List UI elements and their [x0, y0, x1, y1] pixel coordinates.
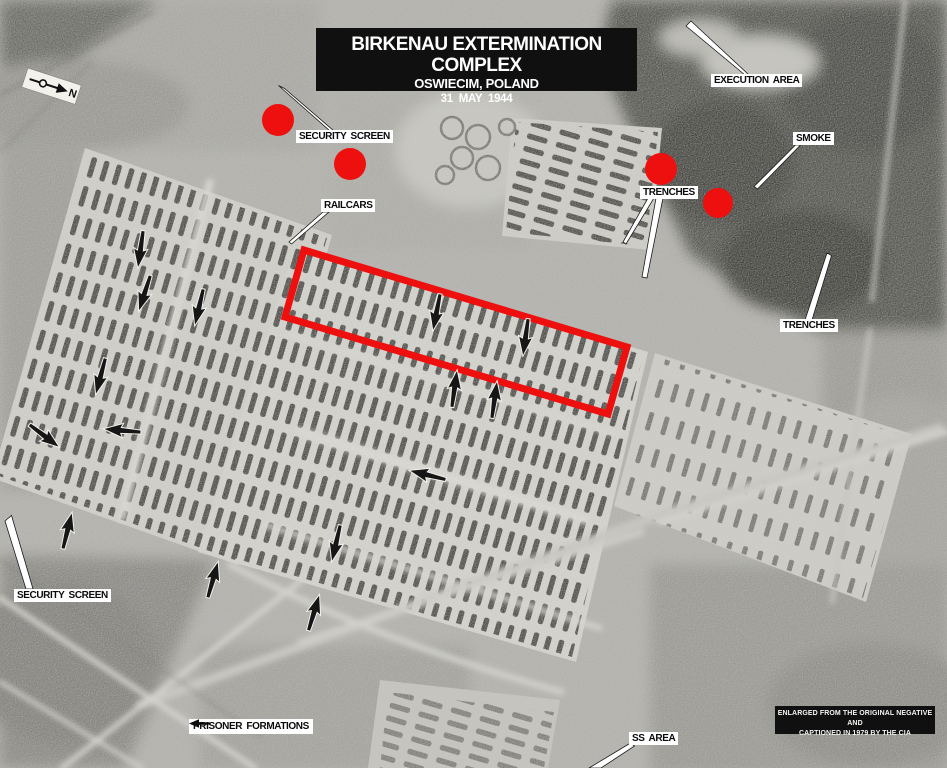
- arrow-marker: [516, 318, 536, 358]
- label-text: SECURITY SCREEN: [17, 590, 108, 601]
- title-box: BIRKENAU EXTERMINATION COMPLEX OSWIECIM,…: [316, 28, 637, 91]
- leader-railcars: [289, 212, 329, 244]
- label-security-screen-top: SECURITY SCREEN: [296, 130, 393, 143]
- label-railcars: RAILCARS: [321, 199, 375, 212]
- arrow-marker: [485, 380, 505, 420]
- arrow-marker: [131, 230, 151, 270]
- compass-north-indicator: N: [22, 68, 81, 104]
- label-text: SMOKE: [796, 133, 831, 144]
- birkenau-annotated-aerial-photo: N BIRKENAU EXTERMINATION COMPLEX OSWIECI…: [0, 0, 947, 768]
- label-trenches-lower: TRENCHES: [780, 319, 838, 332]
- annotation-overlay: N: [0, 0, 947, 768]
- caption-line1: ENLARGED FROM THE ORIGINAL NEGATIVE AND: [775, 709, 935, 729]
- red-dot-marker: [703, 188, 733, 218]
- arrow-marker: [201, 559, 225, 599]
- label-text: EXECUTION AREA: [714, 75, 799, 86]
- arrow-marker: [25, 419, 64, 453]
- title-line1: BIRKENAU EXTERMINATION COMPLEX: [316, 28, 637, 76]
- label-text: SECURITY SCREEN: [299, 131, 390, 142]
- leader-trenches-lower: [805, 253, 832, 320]
- arrow-marker: [102, 422, 141, 440]
- arrow-marker: [325, 523, 348, 563]
- red-dot-marker: [334, 148, 366, 180]
- leader-smoke: [754, 145, 801, 189]
- label-text: TRENCHES: [643, 187, 695, 198]
- arrow-marker: [407, 463, 447, 486]
- arrow-marker: [426, 292, 447, 332]
- arrow-marker: [132, 273, 157, 314]
- red-dot-marker: [262, 104, 294, 136]
- title-line2: OSWIECIM, POLAND: [316, 76, 637, 92]
- arrow-marker: [89, 356, 113, 396]
- red-dot-marker: [645, 153, 677, 185]
- label-prisoner-formations: PRISONER FORMATIONS: [189, 719, 313, 734]
- label-text: SS AREA: [632, 733, 675, 744]
- arrow-marker: [188, 287, 211, 327]
- label-text: TRENCHES: [783, 320, 835, 331]
- label-ss-area: SS AREA: [629, 732, 678, 745]
- label-smoke: SMOKE: [793, 132, 834, 145]
- label-execution-area: EXECUTION AREA: [711, 74, 802, 87]
- leader-ss-area: [589, 743, 635, 768]
- arrow-marker: [302, 592, 327, 633]
- label-security-screen-bottom: SECURITY SCREEN: [14, 589, 111, 602]
- label-trenches-upper: TRENCHES: [640, 186, 698, 199]
- title-line3: 31 MAY 1944: [316, 92, 637, 106]
- arrow-marker: [56, 510, 79, 550]
- arrow-marker: [445, 369, 465, 409]
- leader-execution-area: [686, 21, 749, 75]
- caption-box: ENLARGED FROM THE ORIGINAL NEGATIVE AND …: [775, 706, 935, 734]
- leader-security-screen-bottom: [5, 516, 33, 590]
- caption-line2: CAPTIONED IN 1979 BY THE CIA: [775, 729, 935, 739]
- label-text: RAILCARS: [324, 200, 372, 211]
- left-arrow-icon: [189, 719, 211, 728]
